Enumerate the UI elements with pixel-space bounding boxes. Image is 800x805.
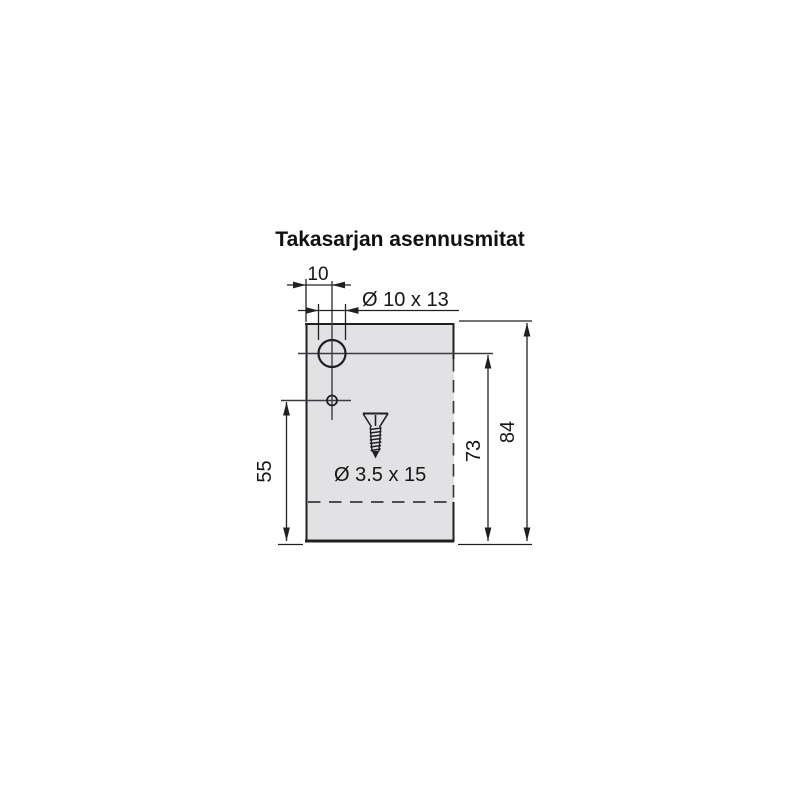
- screw-size-label: Ø 3.5 x 15: [334, 464, 426, 486]
- technical-drawing: Takasarjan asennusmitat 1: [0, 0, 800, 800]
- arrowhead: [346, 307, 359, 314]
- arrowhead: [283, 528, 290, 542]
- dimension-label: 84: [497, 421, 519, 443]
- dimension-label: Ø 10 x 13: [362, 289, 449, 311]
- dimension-55: 55: [254, 402, 303, 545]
- arrowhead: [485, 355, 492, 369]
- arrowhead: [332, 282, 345, 289]
- page-title: Takasarjan asennusmitat: [275, 228, 524, 251]
- dimension-84: 84: [458, 321, 532, 545]
- arrowhead: [524, 528, 531, 542]
- arrowhead: [283, 402, 290, 416]
- dimension-label: 10: [307, 264, 328, 285]
- dimension-label: 55: [254, 460, 276, 482]
- dimension-label: 73: [463, 440, 485, 462]
- dimension-73: 73: [463, 355, 491, 541]
- arrowhead: [306, 307, 319, 314]
- arrowhead: [524, 323, 531, 337]
- drawing-canvas: Takasarjan asennusmitat 1: [0, 0, 800, 800]
- arrowhead: [485, 528, 492, 542]
- arrowhead: [293, 282, 306, 289]
